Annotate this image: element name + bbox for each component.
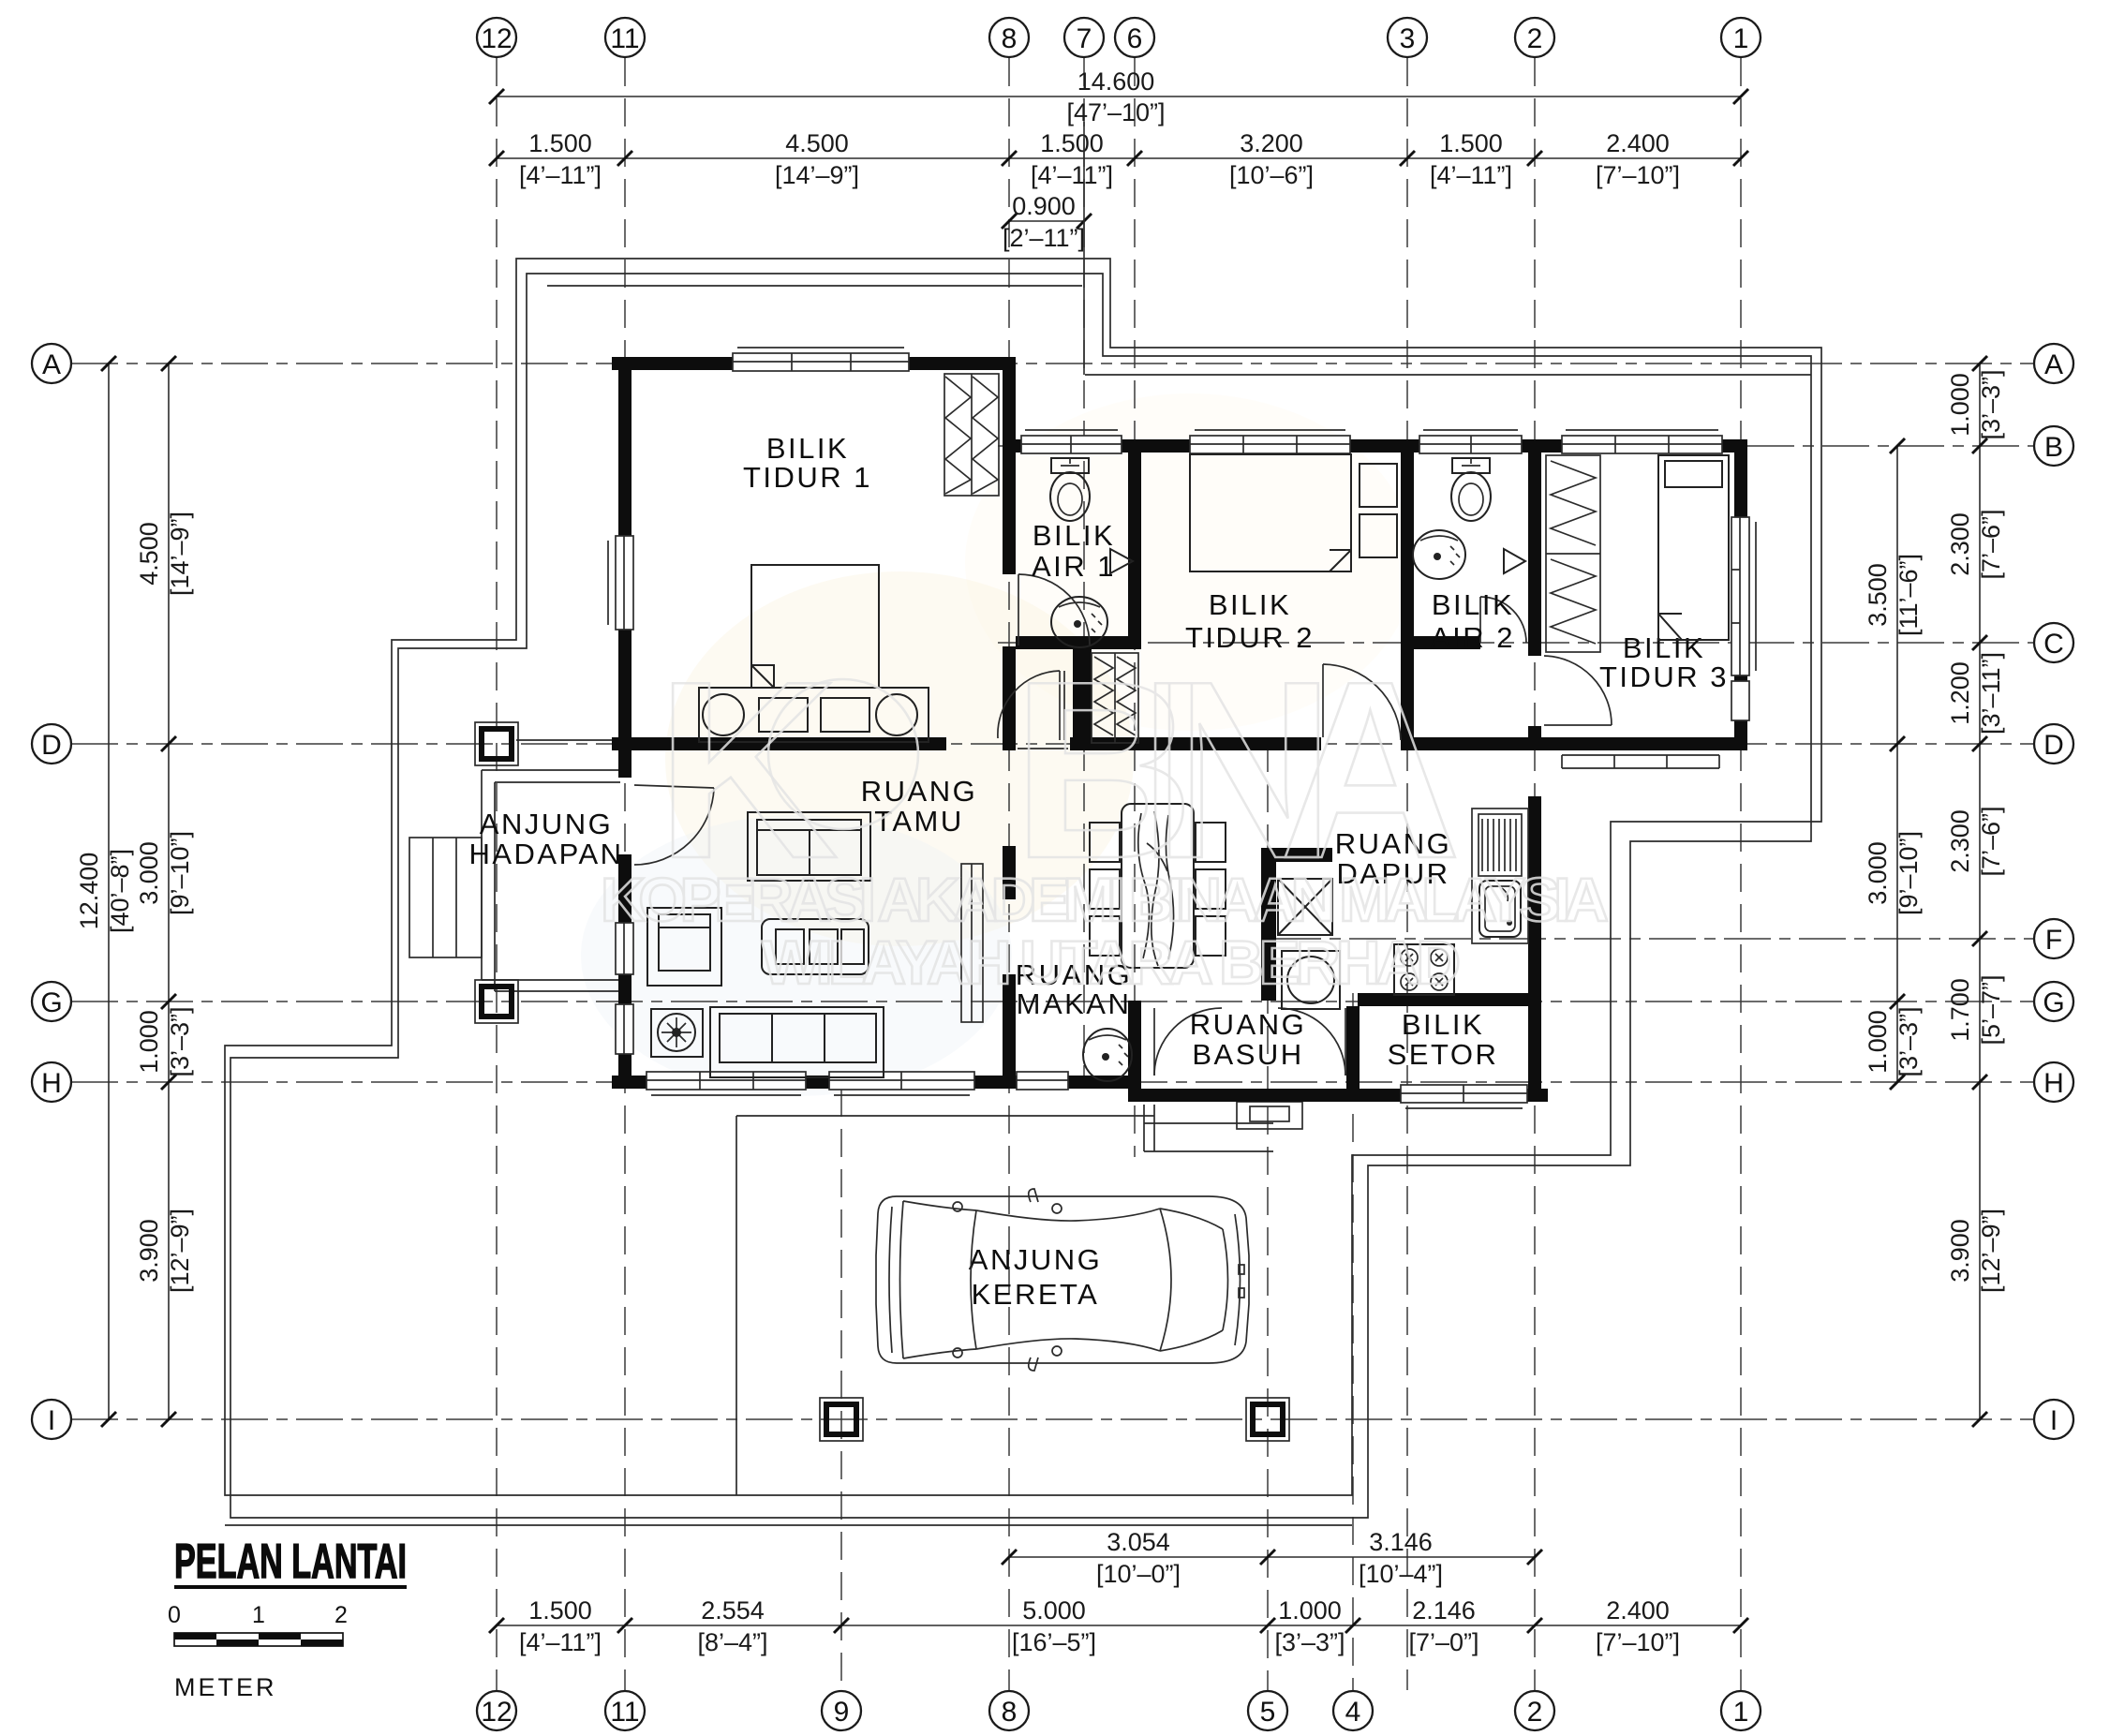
svg-text:1.000: 1.000 bbox=[1278, 1596, 1342, 1625]
svg-text:[14’–9”]: [14’–9”] bbox=[775, 161, 859, 189]
svg-text:H: H bbox=[2043, 1068, 2064, 1099]
svg-text:G: G bbox=[2043, 987, 2064, 1018]
svg-text:[7’–10”]: [7’–10”] bbox=[1596, 161, 1680, 189]
svg-text:[4’–11”]: [4’–11”] bbox=[1031, 161, 1113, 189]
svg-text:KERETA: KERETA bbox=[972, 1278, 1100, 1311]
svg-text:[7’–6”]: [7’–6”] bbox=[1977, 806, 2005, 876]
svg-text:[3’–3”]: [3’–3”] bbox=[1895, 1006, 1923, 1076]
svg-text:1: 1 bbox=[1733, 23, 1749, 54]
svg-text:6: 6 bbox=[1127, 23, 1143, 54]
svg-text:[4’–11”]: [4’–11”] bbox=[519, 161, 602, 189]
svg-text:[14’–9”]: [14’–9”] bbox=[166, 512, 194, 596]
svg-text:A: A bbox=[42, 349, 61, 380]
svg-text:1.500: 1.500 bbox=[528, 129, 592, 157]
svg-text:[10’–6”]: [10’–6”] bbox=[1229, 161, 1314, 189]
svg-text:2.554: 2.554 bbox=[701, 1596, 765, 1625]
svg-text:11: 11 bbox=[610, 23, 639, 54]
svg-text:3.000: 3.000 bbox=[135, 841, 163, 905]
svg-text:11: 11 bbox=[610, 1697, 639, 1728]
svg-text:3: 3 bbox=[1400, 23, 1416, 54]
svg-text:D: D bbox=[2043, 730, 2064, 761]
svg-text:WILAYAH UTARA BERHAD: WILAYAH UTARA BERHAD bbox=[762, 927, 1461, 997]
svg-text:12: 12 bbox=[481, 23, 512, 54]
svg-text:PELAN LANTAI: PELAN LANTAI bbox=[174, 1535, 407, 1589]
svg-text:[3’–11”]: [3’–11”] bbox=[1977, 652, 2005, 734]
svg-text:KOPERASI AKADEMI BINAAN MALAYS: KOPERASI AKADEMI BINAAN MALAYSIA bbox=[601, 865, 1609, 934]
svg-text:ANJUNG: ANJUNG bbox=[969, 1243, 1102, 1276]
svg-text:BILIK: BILIK bbox=[1623, 631, 1705, 664]
svg-text:AIR 1: AIR 1 bbox=[1032, 550, 1116, 583]
svg-text:D: D bbox=[41, 730, 62, 761]
svg-text:1.000: 1.000 bbox=[1946, 373, 1974, 437]
svg-text:0.900: 0.900 bbox=[1012, 192, 1076, 220]
svg-text:8: 8 bbox=[1002, 1697, 1018, 1728]
svg-text:BILIK: BILIK bbox=[1209, 588, 1291, 621]
svg-text:3.054: 3.054 bbox=[1107, 1528, 1170, 1556]
svg-text:[5’–7”]: [5’–7”] bbox=[1977, 974, 2005, 1045]
svg-text:[3’–3”]: [3’–3”] bbox=[166, 1006, 194, 1076]
svg-text:1.000: 1.000 bbox=[1864, 1010, 1892, 1074]
svg-text:[9’–10”]: [9’–10”] bbox=[1895, 831, 1923, 915]
svg-text:1.500: 1.500 bbox=[528, 1596, 592, 1625]
svg-text:12.400: 12.400 bbox=[75, 853, 103, 930]
svg-text:2.300: 2.300 bbox=[1946, 512, 1974, 576]
svg-text:BILIK: BILIK bbox=[766, 432, 849, 465]
svg-text:[7’–6”]: [7’–6”] bbox=[1977, 509, 2005, 579]
svg-text:A: A bbox=[2044, 349, 2063, 380]
svg-text:2.300: 2.300 bbox=[1946, 809, 1974, 873]
svg-text:4.500: 4.500 bbox=[135, 522, 163, 586]
svg-text:3.000: 3.000 bbox=[1864, 841, 1892, 905]
svg-text:I: I bbox=[2050, 1405, 2058, 1436]
svg-text:[8’–4”]: [8’–4”] bbox=[697, 1628, 767, 1656]
svg-text:2: 2 bbox=[334, 1602, 348, 1628]
svg-text:B: B bbox=[2044, 432, 2063, 463]
svg-text:1.700: 1.700 bbox=[1946, 978, 1974, 1042]
svg-text:3.200: 3.200 bbox=[1240, 129, 1303, 157]
svg-text:TIDUR 1: TIDUR 1 bbox=[743, 461, 872, 494]
svg-text:[4’–11”]: [4’–11”] bbox=[1430, 161, 1512, 189]
svg-text:2.400: 2.400 bbox=[1606, 129, 1670, 157]
svg-text:METER: METER bbox=[174, 1673, 277, 1701]
svg-text:[9’–10”]: [9’–10”] bbox=[166, 831, 194, 915]
svg-text:2.146: 2.146 bbox=[1412, 1596, 1476, 1625]
svg-text:H: H bbox=[41, 1068, 62, 1099]
svg-text:1.200: 1.200 bbox=[1946, 661, 1974, 725]
svg-text:5.000: 5.000 bbox=[1022, 1596, 1086, 1625]
svg-text:1: 1 bbox=[252, 1602, 265, 1628]
svg-text:TAMU: TAMU bbox=[874, 805, 964, 838]
svg-text:[12’–9”]: [12’–9”] bbox=[166, 1209, 194, 1293]
svg-text:0: 0 bbox=[168, 1602, 181, 1628]
svg-text:I: I bbox=[48, 1405, 55, 1436]
svg-text:G: G bbox=[40, 987, 62, 1018]
svg-text:[7’–0”]: [7’–0”] bbox=[1408, 1628, 1478, 1656]
svg-text:[47’–10”]: [47’–10”] bbox=[1066, 98, 1165, 126]
svg-text:1.500: 1.500 bbox=[1040, 129, 1104, 157]
svg-text:[3’–3”]: [3’–3”] bbox=[1977, 369, 2005, 439]
svg-text:[4’–11”]: [4’–11”] bbox=[519, 1628, 602, 1656]
svg-text:[11’–6”]: [11’–6”] bbox=[1895, 554, 1923, 636]
svg-text:5: 5 bbox=[1260, 1697, 1276, 1728]
svg-text:RUANG: RUANG bbox=[1190, 1008, 1306, 1041]
svg-text:[12’–9”]: [12’–9”] bbox=[1977, 1209, 2005, 1293]
svg-text:BILIK: BILIK bbox=[1402, 1008, 1484, 1041]
svg-text:[7’–10”]: [7’–10”] bbox=[1596, 1628, 1680, 1656]
svg-text:[3’–3”]: [3’–3”] bbox=[1274, 1628, 1345, 1656]
svg-text:2: 2 bbox=[1527, 1697, 1543, 1728]
svg-text:8: 8 bbox=[1002, 23, 1018, 54]
svg-text:BILIK: BILIK bbox=[1432, 588, 1514, 621]
svg-text:[2’–11”]: [2’–11”] bbox=[1003, 224, 1085, 252]
svg-text:1.500: 1.500 bbox=[1439, 129, 1503, 157]
svg-text:12: 12 bbox=[481, 1697, 512, 1728]
svg-text:9: 9 bbox=[834, 1697, 850, 1728]
svg-text:ANJUNG: ANJUNG bbox=[480, 808, 613, 840]
svg-text:C: C bbox=[2043, 629, 2064, 660]
svg-text:[10’–0”]: [10’–0”] bbox=[1096, 1560, 1181, 1588]
svg-text:RUANG: RUANG bbox=[861, 775, 977, 808]
svg-text:3.500: 3.500 bbox=[1864, 563, 1892, 627]
svg-text:TIDUR 3: TIDUR 3 bbox=[1599, 660, 1729, 693]
svg-text:[40’–8”]: [40’–8”] bbox=[106, 849, 134, 933]
svg-text:BILIK: BILIK bbox=[1033, 519, 1115, 552]
svg-text:[16’–5”]: [16’–5”] bbox=[1012, 1628, 1096, 1656]
svg-text:4.500: 4.500 bbox=[785, 129, 849, 157]
svg-text:3.900: 3.900 bbox=[135, 1219, 163, 1283]
svg-text:3.146: 3.146 bbox=[1369, 1528, 1433, 1556]
svg-text:14.600: 14.600 bbox=[1077, 67, 1155, 96]
svg-text:F: F bbox=[2045, 925, 2062, 956]
svg-text:1.000: 1.000 bbox=[135, 1010, 163, 1074]
svg-text:3.900: 3.900 bbox=[1946, 1219, 1974, 1283]
svg-text:[10’–4”]: [10’–4”] bbox=[1359, 1560, 1443, 1588]
svg-text:SETOR: SETOR bbox=[1388, 1038, 1499, 1071]
svg-text:7: 7 bbox=[1077, 23, 1092, 54]
svg-text:BASUH: BASUH bbox=[1192, 1038, 1303, 1071]
svg-text:2: 2 bbox=[1527, 23, 1543, 54]
svg-text:1: 1 bbox=[1733, 1697, 1749, 1728]
svg-text:2.400: 2.400 bbox=[1606, 1596, 1670, 1625]
svg-text:4: 4 bbox=[1345, 1697, 1361, 1728]
